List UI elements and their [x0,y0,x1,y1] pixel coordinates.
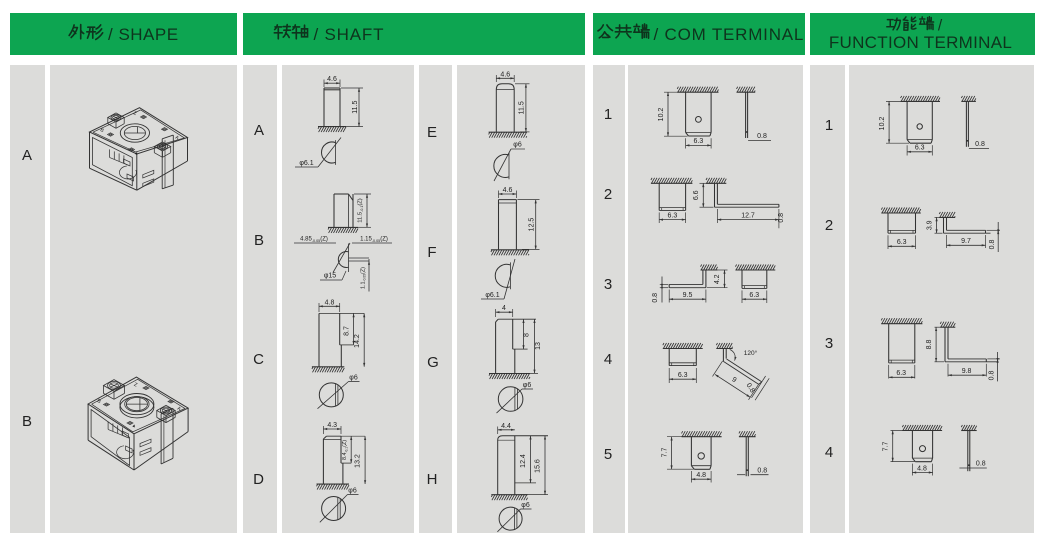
svg-text:9.8: 9.8 [962,368,972,375]
svg-text:/ COM TERMINAL: / COM TERMINAL [654,25,805,44]
svg-text:13.2: 13.2 [355,454,362,468]
svg-text:4.3: 4.3 [327,422,337,429]
svg-text:120°: 120° [744,349,758,357]
svg-text:12.4: 12.4 [520,454,527,468]
svg-text:B: B [22,413,32,430]
svg-text:1: 1 [604,106,612,123]
svg-text:3.9: 3.9 [927,220,934,230]
svg-text:7.7: 7.7 [661,448,668,458]
svg-text:8: 8 [524,333,531,337]
svg-text:E: E [427,124,437,141]
svg-text:6.3: 6.3 [694,138,704,145]
svg-text:5: 5 [604,446,612,463]
svg-text:4.4: 4.4 [501,423,511,430]
svg-text:0.8: 0.8 [989,240,996,250]
svg-text:8.8: 8.8 [926,340,933,350]
svg-text:G: G [427,354,439,371]
svg-text:4.8: 4.8 [325,299,335,306]
svg-text:/ SHAPE: / SHAPE [108,25,179,44]
svg-text:φ6: φ6 [521,502,530,509]
svg-text:10.2: 10.2 [658,108,665,122]
svg-text:φ6.1: φ6.1 [299,160,313,167]
svg-text:φ6: φ6 [348,488,357,495]
svg-text:φ6: φ6 [513,142,522,149]
svg-text:2: 2 [825,217,833,234]
svg-text:0.8: 0.8 [976,461,986,468]
svg-text:4: 4 [604,351,612,368]
svg-text:12.7: 12.7 [741,212,755,219]
svg-text:6.3: 6.3 [915,145,925,152]
svg-text:14.2: 14.2 [354,334,361,348]
svg-text:0.8: 0.8 [757,467,767,474]
svg-text:F: F [427,244,436,261]
svg-text:7.7: 7.7 [883,442,890,452]
svg-text:11.5: 11.5 [352,101,359,114]
svg-text:D: D [253,471,264,488]
svg-text:φ15: φ15 [324,273,336,280]
svg-text:6.3: 6.3 [749,292,759,299]
svg-text:6.3: 6.3 [678,372,688,379]
svg-text:A: A [254,122,264,139]
svg-text:φ6: φ6 [349,375,358,382]
svg-text:9.7: 9.7 [961,238,971,245]
svg-text:1: 1 [825,117,833,134]
svg-text:H: H [427,471,438,488]
svg-text:/ SHAFT: / SHAFT [314,25,385,44]
svg-text:C: C [253,351,264,368]
svg-text:0.8: 0.8 [778,213,785,223]
svg-text:4: 4 [825,444,833,461]
svg-text:9.5: 9.5 [683,292,693,299]
svg-text:4.2: 4.2 [714,274,721,284]
svg-text:10.2: 10.2 [879,117,886,131]
svg-text:12.5: 12.5 [529,218,536,232]
svg-text:4: 4 [502,305,506,312]
svg-text:4.8: 4.8 [917,465,927,472]
svg-text:13: 13 [535,342,542,350]
svg-text:0.8: 0.8 [975,141,985,148]
svg-text:6.6: 6.6 [693,190,700,200]
svg-text:6.3: 6.3 [896,370,906,377]
svg-text:4.6: 4.6 [503,187,513,194]
svg-text:0.8: 0.8 [989,371,996,381]
svg-text:15.6: 15.6 [534,459,541,473]
svg-text:B: B [254,232,264,249]
svg-text:4.8: 4.8 [696,472,706,479]
svg-text:2: 2 [604,186,612,203]
svg-text:4.6: 4.6 [500,71,510,78]
svg-text:0.8: 0.8 [652,293,659,303]
svg-text:A: A [22,147,32,164]
svg-text:4.6: 4.6 [327,76,337,83]
svg-text:8.7: 8.7 [344,326,351,336]
svg-text:3: 3 [825,335,833,352]
svg-text:/: / [938,18,943,35]
svg-text:3: 3 [604,276,612,293]
svg-text:0.8: 0.8 [757,133,767,140]
svg-text:6.3: 6.3 [668,212,678,219]
svg-text:φ6: φ6 [523,382,532,389]
svg-text:FUNCTION TERMINAL: FUNCTION TERMINAL [829,33,1012,52]
svg-text:φ6.1: φ6.1 [485,292,499,299]
svg-text:11.5: 11.5 [519,101,526,114]
svg-text:6.3: 6.3 [897,239,907,246]
